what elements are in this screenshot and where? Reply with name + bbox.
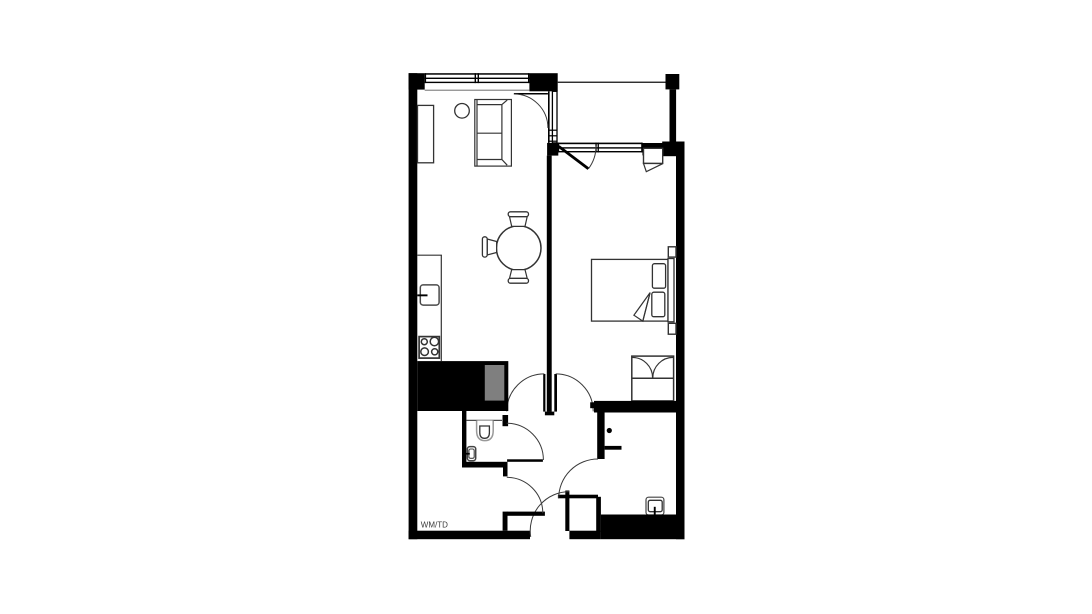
svg-text:WM/TD: WM/TD	[421, 521, 448, 530]
